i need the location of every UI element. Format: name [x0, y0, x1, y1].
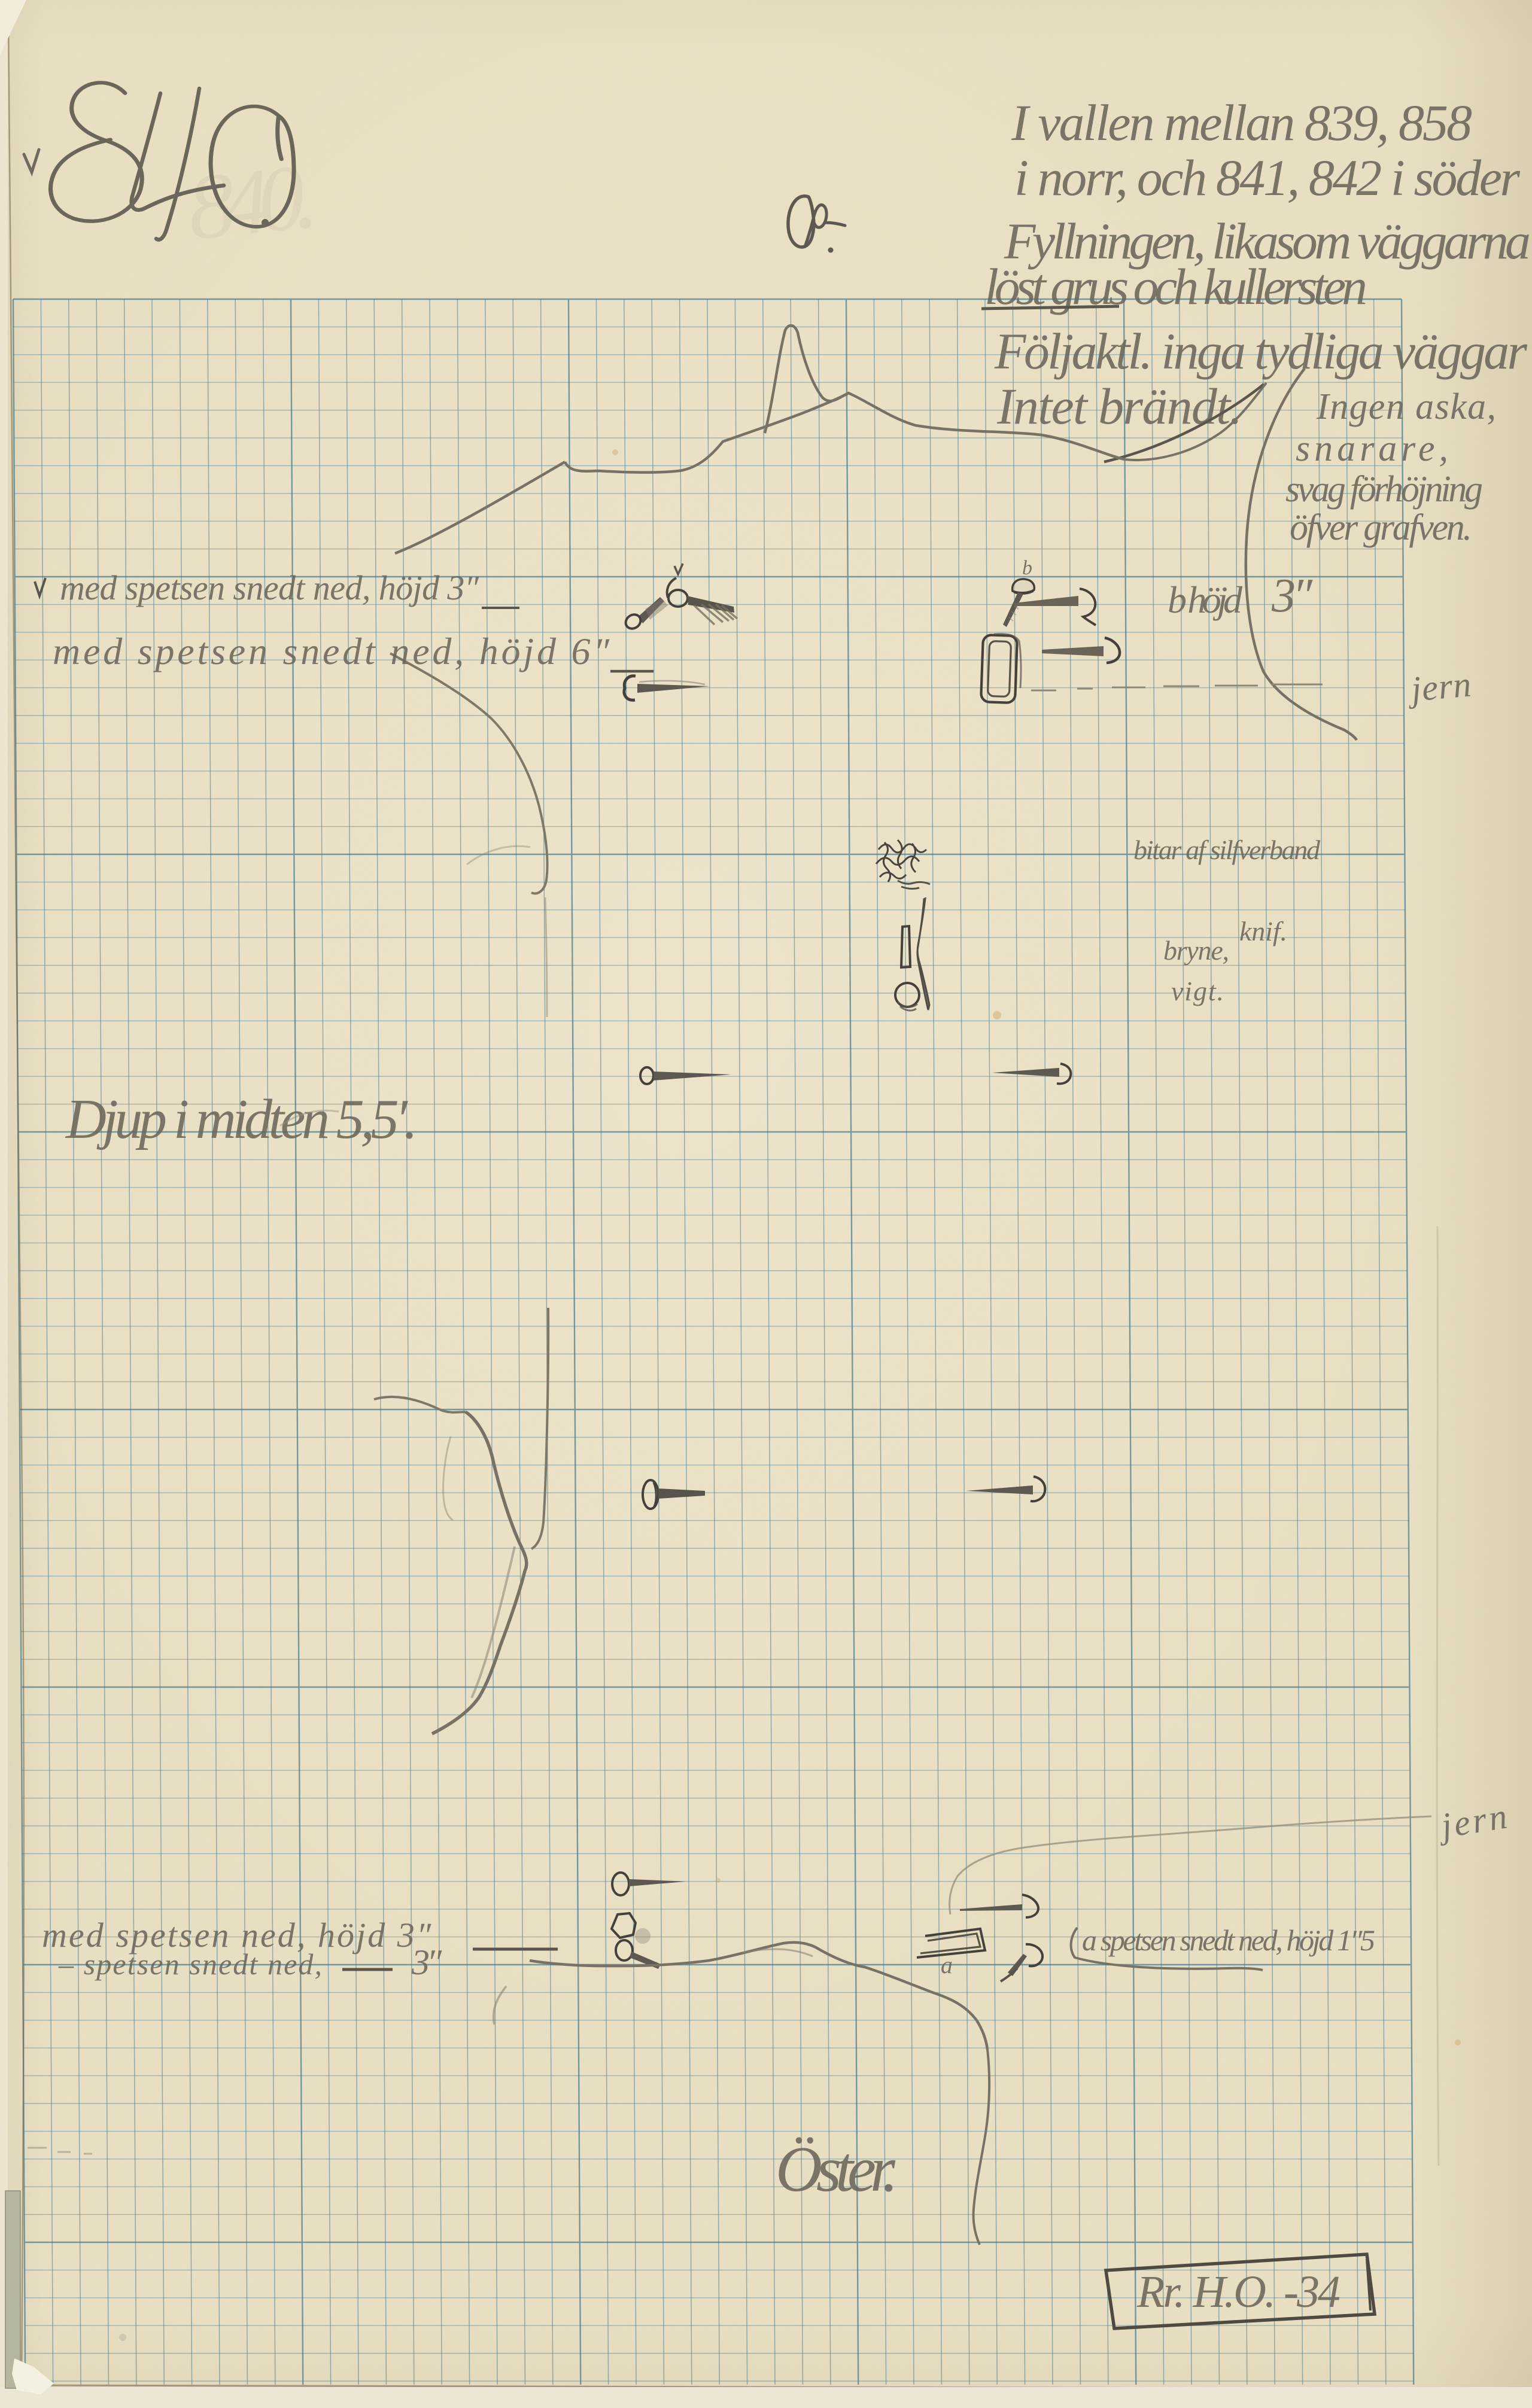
svg-text:knif.: knif.	[1239, 916, 1287, 946]
svg-text:svag förhöjning: svag förhöjning	[1285, 469, 1483, 510]
svg-text:b höjd: b höjd	[1168, 579, 1243, 621]
svg-text:a: a	[941, 1952, 953, 1978]
svg-text:Följaktl. inga tydliga väggar: Följaktl. inga tydliga väggar	[994, 322, 1528, 380]
svg-text:med spetsen snedt ned, höjd 3″: med spetsen snedt ned, höjd 3″	[60, 568, 479, 607]
svg-text:jern: jern	[1405, 664, 1472, 709]
svg-text:i norr, och 841, 842 i söder: i norr, och 841, 842 i söder	[1014, 149, 1521, 206]
svg-text:b: b	[1022, 557, 1032, 579]
svg-text:Intet brändt.: Intet brändt.	[996, 378, 1242, 435]
svg-text:Djup i midten 5,5′.: Djup i midten 5,5′.	[65, 1088, 418, 1150]
svg-text:bryne,: bryne,	[1163, 935, 1229, 966]
svg-text:I vallen mellan 839, 858: I vallen mellan 839, 858	[1011, 94, 1472, 151]
svg-text:Ingen aska,: Ingen aska,	[1316, 386, 1496, 427]
svg-text:öfver grafven.: öfver grafven.	[1290, 507, 1472, 548]
svg-text:840.: 840.	[183, 144, 322, 260]
svg-text:3″: 3″	[411, 1943, 442, 1982]
svg-text:a spetsen snedt ned, höjd 1″5: a spetsen snedt ned, höjd 1″5	[1082, 1923, 1375, 1957]
svg-text:snarare,: snarare,	[1296, 428, 1448, 469]
svg-text:Rr. H.O. -34: Rr. H.O. -34	[1136, 2267, 1340, 2317]
svg-text:Öster.: Öster.	[776, 2134, 898, 2205]
svg-text:– spetsen snedt ned,: – spetsen snedt ned,	[58, 1947, 322, 1981]
svg-text:bitar af silfverband: bitar af silfverband	[1133, 835, 1321, 865]
svg-text:3″: 3″	[1271, 570, 1314, 622]
